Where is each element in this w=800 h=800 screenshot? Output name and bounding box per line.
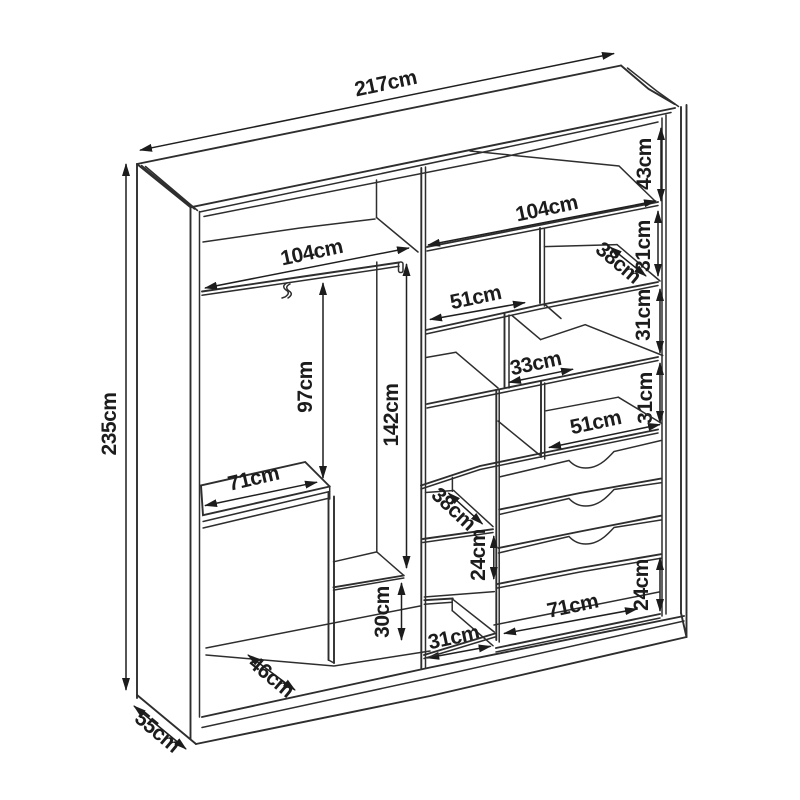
svg-text:31cm: 31cm [632,220,655,272]
svg-text:30cm: 30cm [371,586,394,638]
svg-text:24cm: 24cm [630,559,653,611]
svg-text:97cm: 97cm [294,361,317,413]
svg-text:142cm: 142cm [380,384,403,447]
svg-text:43cm: 43cm [633,138,656,190]
svg-text:235cm: 235cm [98,393,121,456]
svg-text:24cm: 24cm [467,529,490,581]
svg-text:31cm: 31cm [632,289,655,341]
svg-text:31cm: 31cm [634,372,657,424]
